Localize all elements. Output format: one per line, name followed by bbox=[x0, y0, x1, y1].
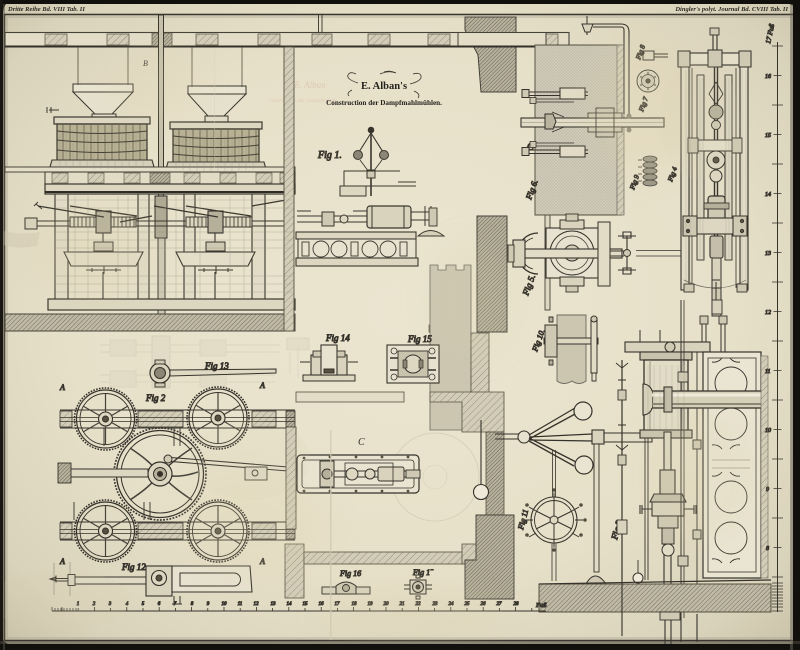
svg-text:Fig 2: Fig 2 bbox=[145, 393, 166, 403]
svg-text:13: 13 bbox=[271, 602, 277, 607]
svg-text:Dritte Reihe Bd. VIII Tab. II: Dritte Reihe Bd. VIII Tab. II bbox=[7, 6, 85, 13]
svg-text:15: 15 bbox=[303, 602, 309, 607]
svg-text:10: 10 bbox=[765, 428, 771, 434]
svg-text:28: 28 bbox=[514, 602, 520, 607]
svg-text:A: A bbox=[259, 381, 265, 390]
svg-text:C: C bbox=[358, 437, 365, 448]
svg-text:Fig 1.: Fig 1. bbox=[317, 150, 342, 161]
svg-text:E. Alban: E. Alban bbox=[293, 80, 326, 90]
svg-text:A: A bbox=[59, 557, 65, 566]
svg-text:16: 16 bbox=[319, 602, 325, 607]
svg-text:Fig 14: Fig 14 bbox=[325, 333, 350, 343]
svg-text:16: 16 bbox=[765, 74, 771, 80]
svg-text:Fig 12.: Fig 12. bbox=[121, 562, 148, 572]
svg-text:Fuß: Fuß bbox=[535, 602, 547, 609]
svg-text:11: 11 bbox=[765, 369, 771, 375]
svg-text:Fig 16: Fig 16 bbox=[339, 569, 361, 578]
svg-text:11: 11 bbox=[238, 602, 243, 607]
svg-text:8: 8 bbox=[766, 546, 769, 552]
svg-text:Fig 13: Fig 13 bbox=[204, 361, 229, 371]
svg-text:Fig 1ˉ: Fig 1ˉ bbox=[412, 568, 434, 577]
svg-text:9: 9 bbox=[766, 487, 769, 493]
svg-text:15: 15 bbox=[765, 133, 771, 139]
svg-text:10: 10 bbox=[222, 602, 228, 607]
svg-text:E. Alban's: E. Alban's bbox=[361, 81, 407, 92]
svg-text:12: 12 bbox=[254, 602, 260, 607]
svg-text:27: 27 bbox=[497, 602, 503, 607]
svg-text:Construction der Dampfmahlmühl: Construction der Dampfmahlmühlen. bbox=[326, 99, 442, 107]
svg-text:Dingler's polyt. Journal Bd. C: Dingler's polyt. Journal Bd. CVIII Tab. … bbox=[674, 6, 788, 13]
svg-text:13: 13 bbox=[765, 251, 771, 257]
svg-text:A: A bbox=[59, 383, 65, 392]
svg-text:14: 14 bbox=[287, 602, 293, 607]
svg-text:12: 12 bbox=[765, 310, 771, 316]
svg-text:14: 14 bbox=[765, 191, 771, 198]
svg-text:Fig 15: Fig 15 bbox=[407, 334, 432, 344]
